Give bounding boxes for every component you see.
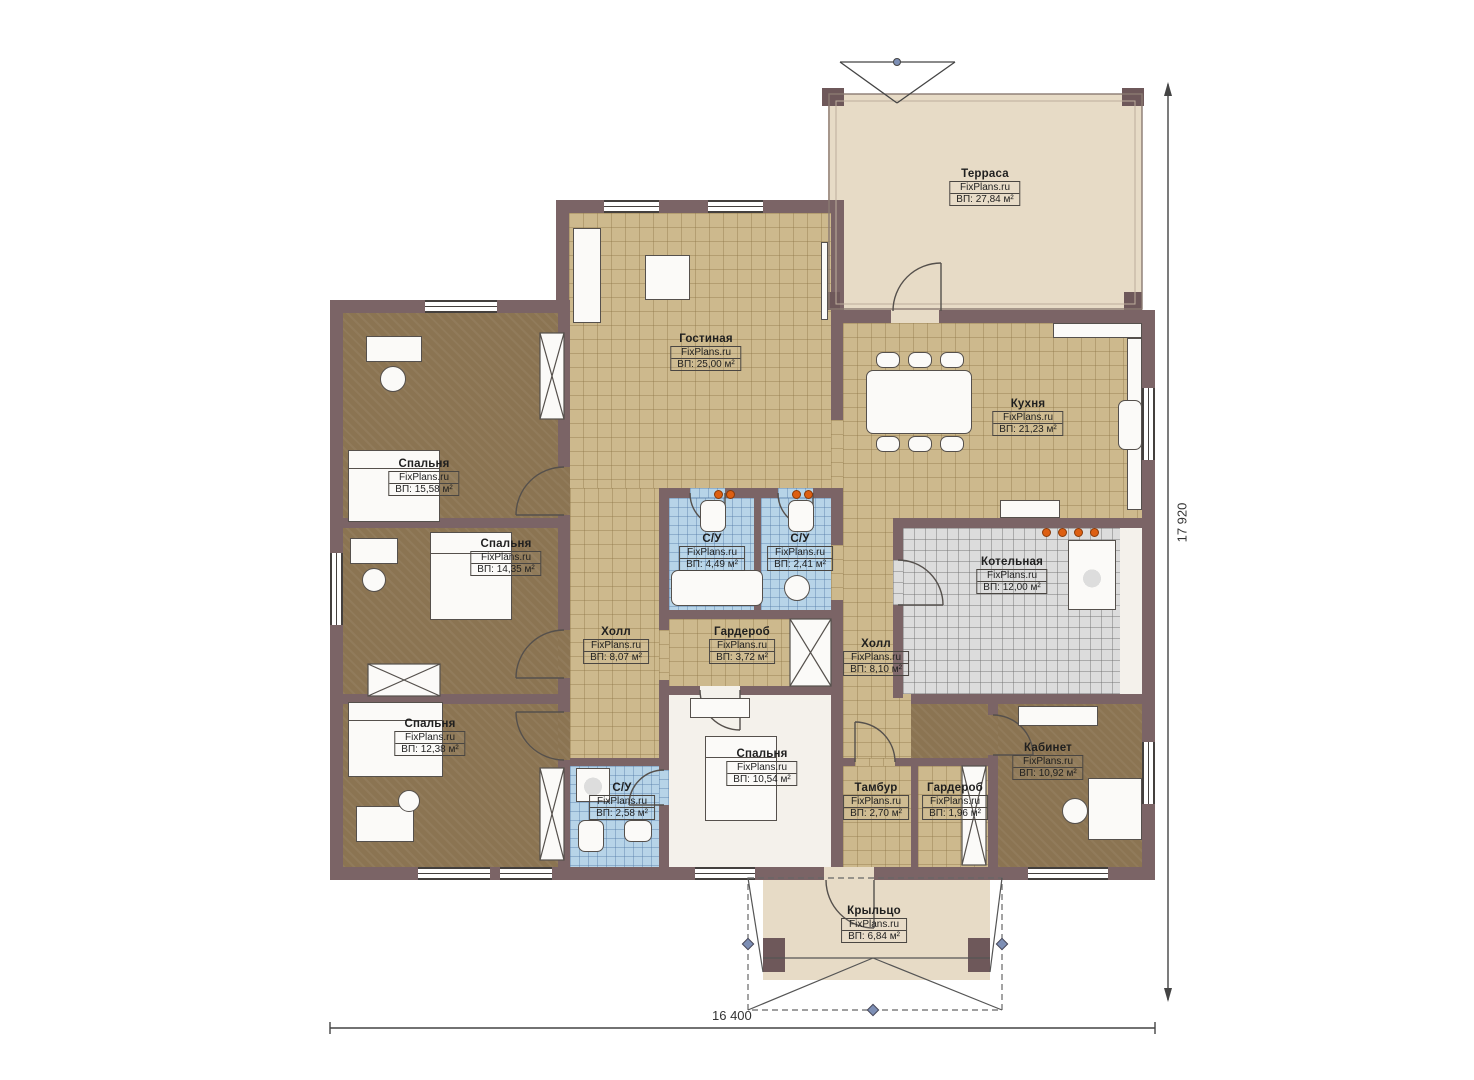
room-name: Терраса	[949, 168, 1020, 180]
room-name: Гардероб	[922, 782, 988, 794]
room-area: ВП: 10,54 м²	[727, 774, 796, 785]
watermark: FixPlans.ru	[727, 762, 796, 774]
room-name: Тамбур	[843, 782, 909, 794]
room-label-terrace: Терраса FixPlans.ru ВП: 27,84 м²	[949, 168, 1020, 207]
watermark: FixPlans.ru	[710, 640, 774, 652]
watermark: FixPlans.ru	[389, 472, 458, 484]
room-label-boiler: Котельная FixPlans.ru ВП: 12,00 м²	[976, 556, 1047, 595]
room-label-bedroom1: Спальня FixPlans.ru ВП: 15,58 м²	[388, 458, 459, 497]
sink-icon	[1118, 400, 1142, 450]
floor-plan-canvas: Терраса FixPlans.ru ВП: 27,84 м² Гостина…	[0, 0, 1474, 1080]
room-area: ВП: 12,00 м²	[977, 582, 1046, 593]
burner-dot-icon	[1058, 528, 1067, 537]
dining-table-icon	[866, 370, 972, 434]
toilet-icon	[578, 820, 604, 852]
sink-icon	[624, 820, 652, 842]
room-name: Холл	[583, 626, 649, 638]
bathtub-icon	[671, 570, 763, 606]
room-name: Котельная	[976, 556, 1047, 568]
burner-dot-icon	[1042, 528, 1051, 537]
chair-icon	[940, 352, 964, 368]
watermark: FixPlans.ru	[395, 732, 464, 744]
room-area: ВП: 14,35 м²	[471, 564, 540, 575]
watermark: FixPlans.ru	[680, 547, 744, 559]
room-name: С/У	[589, 782, 655, 794]
room-area: ВП: 27,84 м²	[950, 194, 1019, 205]
room-name: Спальня	[394, 718, 465, 730]
watermark: FixPlans.ru	[842, 919, 906, 931]
watermark: FixPlans.ru	[844, 652, 908, 664]
room-label-bedroom4: Спальня FixPlans.ru ВП: 10,54 м²	[726, 748, 797, 787]
watermark: FixPlans.ru	[768, 547, 832, 559]
dresser-icon	[366, 336, 422, 362]
room-label-tambour: Тамбур FixPlans.ru ВП: 2,70 м²	[843, 782, 909, 821]
room-area: ВП: 25,00 м²	[671, 359, 740, 370]
dresser-icon	[690, 698, 750, 718]
room-area: ВП: 4,49 м²	[680, 559, 744, 570]
room-label-wardrobe1: Гардероб FixPlans.ru ВП: 3,72 м²	[709, 626, 775, 665]
stove-icon	[1000, 500, 1060, 518]
chair-icon	[398, 790, 420, 812]
room-name: Гардероб	[709, 626, 775, 638]
room-label-bedroom2: Спальня FixPlans.ru ВП: 14,35 м²	[470, 538, 541, 577]
boiler-unit-icon	[1068, 540, 1116, 610]
room-name: Кухня	[992, 398, 1063, 410]
room-name: Гостиная	[670, 333, 741, 345]
room-area: ВП: 3,72 м²	[710, 652, 774, 663]
sink-icon	[784, 575, 810, 601]
desk-icon	[1088, 778, 1142, 840]
tv-icon	[821, 242, 828, 320]
sofa-icon	[1018, 706, 1098, 726]
dimension-height-label: 17 920	[1175, 493, 1190, 553]
room-area: ВП: 6,84 м²	[842, 931, 906, 942]
room-label-living: Гостиная FixPlans.ru ВП: 25,00 м²	[670, 333, 741, 372]
chair-icon	[876, 436, 900, 452]
watermark: FixPlans.ru	[923, 796, 987, 808]
room-label-bath2: С/У FixPlans.ru ВП: 2,41 м²	[767, 533, 833, 572]
room-area: ВП: 2,70 м²	[844, 808, 908, 819]
dresser-icon	[350, 538, 398, 564]
burner-dot-icon	[1090, 528, 1099, 537]
room-name: Спальня	[726, 748, 797, 760]
chair-icon	[940, 436, 964, 452]
room-label-bath1: С/У FixPlans.ru ВП: 4,49 м²	[679, 533, 745, 572]
room-label-wardrobe2: Гардероб FixPlans.ru ВП: 1,96 м²	[922, 782, 988, 821]
watermark: FixPlans.ru	[471, 552, 540, 564]
watermark: FixPlans.ru	[584, 640, 648, 652]
kitchen-counter-icon	[1053, 323, 1142, 338]
watermark: FixPlans.ru	[671, 347, 740, 359]
room-label-bath3: С/У FixPlans.ru ВП: 2,58 м²	[589, 782, 655, 821]
room-area: ВП: 21,23 м²	[993, 424, 1062, 435]
fixture-dot-icon	[792, 490, 801, 499]
chair-icon	[908, 352, 932, 368]
watermark: FixPlans.ru	[977, 570, 1046, 582]
room-label-kitchen: Кухня FixPlans.ru ВП: 21,23 м²	[992, 398, 1063, 437]
toilet-icon	[788, 500, 814, 532]
room-area: ВП: 2,41 м²	[768, 559, 832, 570]
chair-icon	[908, 436, 932, 452]
toilet-icon	[700, 500, 726, 532]
room-name: С/У	[679, 533, 745, 545]
room-area: ВП: 8,10 м²	[844, 664, 908, 675]
room-name: Спальня	[388, 458, 459, 470]
sofa-icon	[573, 228, 601, 323]
burner-dot-icon	[1074, 528, 1083, 537]
watermark: FixPlans.ru	[950, 182, 1019, 194]
watermark: FixPlans.ru	[590, 796, 654, 808]
watermark: FixPlans.ru	[844, 796, 908, 808]
stool-icon	[362, 568, 386, 592]
room-label-porch: Крыльцо FixPlans.ru ВП: 6,84 м²	[841, 905, 907, 944]
room-area: ВП: 15,58 м²	[389, 484, 458, 495]
fixture-dot-icon	[726, 490, 735, 499]
fixture-dot-icon	[714, 490, 723, 499]
chair-icon	[876, 352, 900, 368]
room-name: Спальня	[470, 538, 541, 550]
chair-icon	[1062, 798, 1088, 824]
watermark: FixPlans.ru	[993, 412, 1062, 424]
room-name: Крыльцо	[841, 905, 907, 917]
dimension-width-label: 16 400	[712, 1008, 752, 1023]
room-label-bedroom3: Спальня FixPlans.ru ВП: 12,38 м²	[394, 718, 465, 757]
room-label-hall1: Холл FixPlans.ru ВП: 8,07 м²	[583, 626, 649, 665]
room-area: ВП: 8,07 м²	[584, 652, 648, 663]
room-area: ВП: 10,92 м²	[1013, 768, 1082, 779]
room-name: Кабинет	[1012, 742, 1083, 754]
room-area: ВП: 12,38 м²	[395, 744, 464, 755]
room-label-hall2: Холл FixPlans.ru ВП: 8,10 м²	[843, 638, 909, 677]
fixture-dot-icon	[804, 490, 813, 499]
coffee-table-icon	[645, 255, 690, 300]
stool-icon	[380, 366, 406, 392]
room-name: Холл	[843, 638, 909, 650]
watermark: FixPlans.ru	[1013, 756, 1082, 768]
room-label-cabinet: Кабинет FixPlans.ru ВП: 10,92 м²	[1012, 742, 1083, 781]
room-area: ВП: 1,96 м²	[923, 808, 987, 819]
room-name: С/У	[767, 533, 833, 545]
room-area: ВП: 2,58 м²	[590, 808, 654, 819]
